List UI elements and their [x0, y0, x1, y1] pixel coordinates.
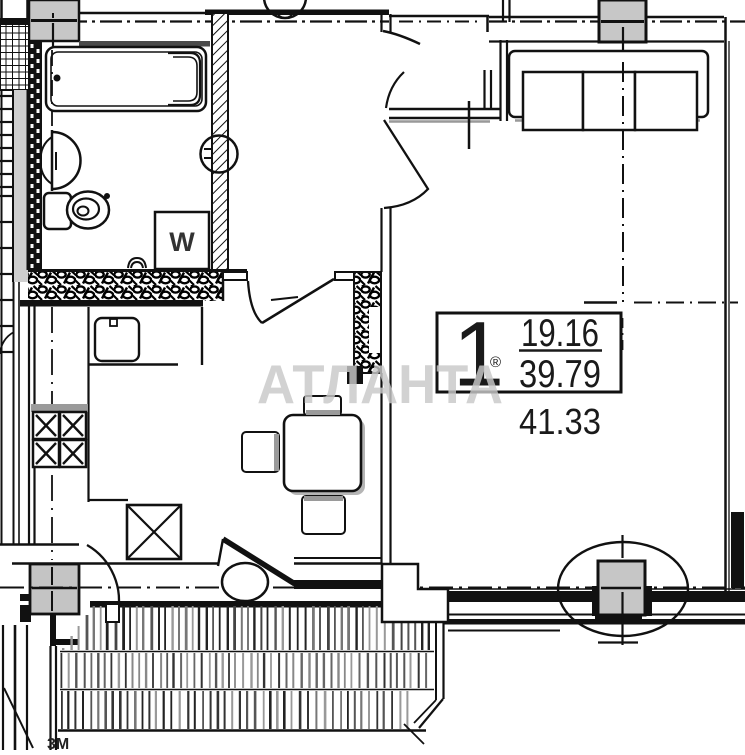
svg-text:3M: 3M — [47, 736, 69, 750]
svg-text:АТЛАНТА: АТЛАНТА — [257, 353, 503, 415]
svg-text:41.33: 41.33 — [519, 401, 601, 442]
svg-text:19.16: 19.16 — [521, 312, 599, 355]
svg-text:39.79: 39.79 — [519, 353, 601, 396]
svg-text:W: W — [169, 227, 195, 257]
